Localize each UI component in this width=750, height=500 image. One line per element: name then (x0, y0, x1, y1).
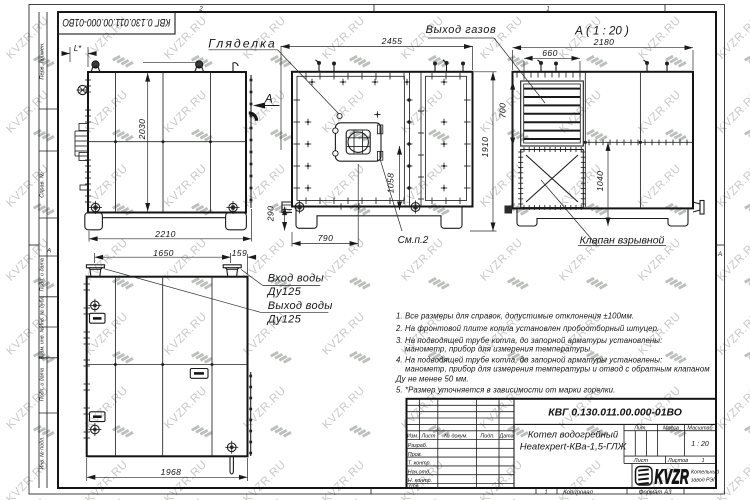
svg-text:159: 159 (232, 248, 248, 258)
svg-text:Ду125: Ду125 (266, 314, 302, 326)
svg-text:Масштаб: Масштаб (687, 425, 713, 431)
svg-text:А: А (717, 251, 722, 258)
svg-text:Лит.: Лит. (633, 425, 647, 431)
svg-text:1 : 20: 1 : 20 (691, 441, 709, 448)
svg-text:Взам. инв. №: Взам. инв. № (39, 326, 45, 359)
svg-text:Ду не менее 50 мм.: Ду не менее 50 мм. (395, 375, 469, 384)
svg-text:1650: 1650 (153, 248, 174, 258)
svg-text:Подп. и дата: Подп. и дата (39, 368, 45, 401)
svg-text:манометр, прибор для измерения: манометр, прибор для измерения температу… (405, 345, 593, 354)
svg-text:Формат А3: Формат А3 (639, 490, 672, 496)
svg-text:2455: 2455 (381, 36, 403, 46)
svg-text:Утв.: Утв. (407, 483, 420, 489)
svg-text:Перв. примен.: Перв. примен. (40, 42, 46, 79)
svg-text:Справ. №: Справ. № (40, 172, 46, 197)
svg-text:Котельный: Котельный (691, 469, 719, 476)
svg-text:L*: L* (74, 44, 82, 53)
svg-text:Вход воды: Вход воды (268, 273, 324, 285)
svg-text:Дата: Дата (498, 433, 513, 439)
svg-text:2180: 2180 (593, 37, 615, 47)
svg-text:завод РЭП: завод РЭП (690, 478, 717, 484)
svg-text:2. На фронтовой плите котла ус: 2. На фронтовой плите котла установлен п… (395, 324, 659, 333)
svg-text:манометр, прибор для измерения: манометр, прибор для измерения температу… (405, 365, 710, 374)
svg-text:Подп. и дата: Подп. и дата (39, 258, 45, 291)
svg-text:2030: 2030 (137, 119, 147, 141)
svg-text:Лист: Лист (421, 433, 436, 439)
svg-text:1: 1 (546, 7, 549, 13)
svg-text:Выход воды: Выход воды (268, 300, 333, 312)
svg-text:А: А (46, 248, 51, 255)
svg-text:1. Все размеры для справок, до: 1. Все размеры для справок, допустимые о… (396, 312, 634, 321)
svg-text:См.п.2: См.п.2 (398, 235, 429, 246)
svg-text:1968: 1968 (161, 467, 182, 477)
svg-text:KVZR: KVZR (655, 466, 690, 489)
svg-text:Разраб.: Разраб. (408, 443, 428, 449)
svg-text:790: 790 (318, 233, 334, 243)
svg-text:КВГ 0.130.011.00.000-01ВО: КВГ 0.130.011.00.000-01ВО (548, 408, 682, 419)
svg-text:700: 700 (498, 103, 508, 119)
svg-text:А: А (264, 94, 273, 106)
svg-text:Подп.: Подп. (480, 433, 494, 439)
svg-text:Пров.: Пров. (408, 452, 422, 458)
svg-text:Листов: Листов (667, 458, 688, 464)
svg-text:А ( 1 : 20 ): А ( 1 : 20 ) (574, 26, 629, 38)
svg-text:Инв. № дубл.: Инв. № дубл. (39, 295, 45, 328)
svg-text:Изм.: Изм. (407, 433, 419, 439)
svg-text:660: 660 (542, 48, 558, 58)
svg-text:Т. контр.: Т. контр. (408, 461, 431, 467)
svg-text:Инв. № подл.: Инв. № подл. (39, 437, 45, 470)
svg-text:КВГ 0.130.011.00.000-01ВО: КВГ 0.130.011.00.000-01ВО (62, 16, 170, 28)
svg-text:Heatexpert-КВа-1,5-ГЛЖ: Heatexpert-КВа-1,5-ГЛЖ (520, 442, 628, 453)
svg-text:Копировал: Копировал (563, 490, 593, 496)
svg-text:290: 290 (266, 206, 276, 223)
svg-text:2210: 2210 (154, 229, 176, 239)
svg-text:Котел водогрейный: Котел водогрейный (528, 430, 619, 441)
svg-text:4. На подводящей трубе котла,: 4. На подводящей трубе котла, до запорно… (396, 355, 662, 364)
svg-text:1040: 1040 (595, 171, 605, 192)
svg-text:2: 2 (198, 7, 203, 13)
svg-text:Нач.отд.: Нач.отд. (408, 469, 431, 475)
svg-text:1: 1 (701, 458, 704, 464)
svg-text:Лист: Лист (633, 458, 649, 464)
svg-text:5. *Размер уточняется в зависи: 5. *Размер уточняется в зависимости от м… (396, 386, 615, 395)
svg-text:№ докум.: № докум. (444, 433, 468, 439)
svg-text:3. На подводящей трубе котла,: 3. На подводящей трубе котла, до запорно… (396, 336, 662, 345)
svg-text:Ду125: Ду125 (266, 286, 302, 298)
svg-text:Масса: Масса (663, 425, 679, 431)
svg-text:1910: 1910 (480, 137, 490, 158)
svg-text:Гляделка: Гляделка (208, 37, 276, 51)
svg-text:Выход газов: Выход газов (426, 24, 497, 36)
svg-text:1: 1 (544, 490, 547, 496)
